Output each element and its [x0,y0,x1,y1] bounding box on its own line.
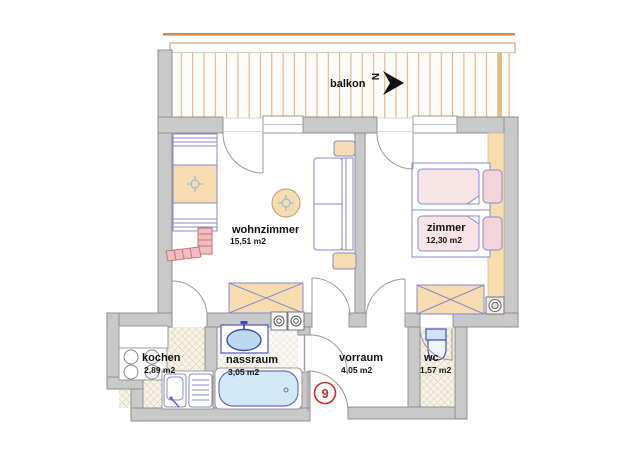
sofa-cushion-top [334,141,355,156]
wall-top-middle [303,117,377,133]
nassraum-area: 3,05 m2 [228,367,259,377]
wall-wc-right [455,327,467,419]
washing-machine-icon [271,312,287,330]
wall-divider-foot [349,313,366,327]
wall-bottom-right [348,407,467,419]
wall-bottom-left [131,408,310,421]
wardrobe-wohnzimmer [229,283,303,313]
nassraum-label: nassraum [226,354,278,366]
wohnzimmer-area: 15,51 m2 [230,236,266,246]
wall-unit [173,134,217,231]
kochen-area: 2,89 m2 [144,365,175,375]
north-letter: N [369,73,380,80]
bed-1-pillow [483,170,502,203]
wc-area: 1,57 m2 [420,365,451,375]
balcony [163,33,515,118]
zimmer-area: 12,30 m2 [426,235,462,245]
toilet-cistern [426,329,446,340]
wall-zimmer-bottom-right [453,313,518,327]
sink-icon [162,371,213,409]
sofa [314,141,356,269]
floorplan-canvas: N balkon wohnzimmer 15,51 m2 zimmer 12,3… [0,0,635,449]
wall-unit-box1 [173,146,217,165]
apartment-number: 9 [322,386,329,401]
wall-unit-shelf-top [173,134,217,146]
vorraum-label: vorraum [339,352,383,364]
washing-machine-icon [288,312,304,330]
sofa-backrest [342,158,353,250]
zimmer-label: zimmer [427,222,466,234]
bed-2-pillow [483,217,502,250]
wohnzimmer-label: wohnzimmer [231,224,300,236]
sofa-cushion-bottom [333,253,356,269]
wall-room-divider [355,133,365,315]
wall-unit-table [173,165,217,203]
wall-right-main [504,117,518,327]
vorraum-area: 4,05 m2 [341,365,372,375]
wardrobe-zimmer [417,285,484,314]
washbasin-icon [221,321,268,353]
balcony-railing-top-line [163,33,515,36]
kochen-label: kochen [142,352,181,364]
wall-unit-box2 [173,203,217,219]
wc-label: wc [423,352,439,364]
round-table [272,189,300,217]
wall-wc-left [408,327,420,407]
wall-zimmer-bottom-left [405,313,420,327]
balcony-railing-band [170,43,515,53]
floorplan-svg: N balkon wohnzimmer 15,51 m2 zimmer 12,3… [0,0,635,449]
bed-1-mattress [418,169,479,204]
balcony-label: balkon [330,78,366,90]
wall-top-left [158,117,223,133]
balcony-deck-accent [498,53,502,118]
duct-icon [486,297,504,314]
wall-left-main [158,50,172,327]
kitchen-counter [119,326,168,348]
